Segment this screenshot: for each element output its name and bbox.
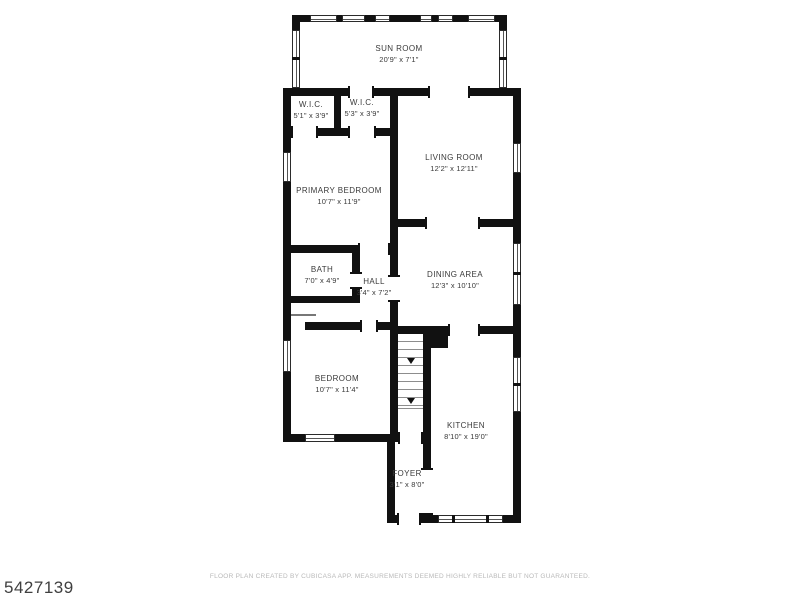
room-label-foyer: FOYER 3'1" x 8'0"	[390, 468, 425, 490]
door-hall-bedroom	[360, 322, 378, 330]
room-name: BATH	[305, 264, 340, 275]
room-name: PRIMARY BEDROOM	[296, 185, 382, 196]
room-name: HALL	[357, 276, 392, 287]
wall-bath-bottom	[283, 296, 360, 303]
stairs-direction-arrow	[407, 398, 415, 404]
room-dims: 7'0" x 4'9"	[305, 275, 340, 286]
wall-kitchen-top	[480, 326, 513, 334]
room-dims: 12'2" x 12'11"	[425, 163, 483, 174]
window-primary-left	[283, 152, 291, 182]
wall-hall-dining-upper	[390, 227, 398, 275]
room-name: FOYER	[390, 468, 425, 479]
door-foyer-top	[398, 434, 423, 442]
window-sunroom-top-3	[375, 15, 390, 22]
staircase	[398, 334, 423, 409]
room-label-hall: HALL 3'4" x 7'2"	[357, 276, 392, 298]
room-label-wic-1: W.I.C. 5'1" x 3'9"	[294, 99, 329, 121]
room-label-living-room: LIVING ROOM 12'2" x 12'11"	[425, 152, 483, 174]
wall-main-top	[283, 88, 521, 96]
room-label-primary-bedroom: PRIMARY BEDROOM 10'7" x 11'9"	[296, 185, 382, 207]
window-bedroom-left	[283, 340, 291, 372]
room-name: SUN ROOM	[375, 43, 422, 54]
room-dims: 10'7" x 11'9"	[296, 196, 382, 207]
door-wic2	[348, 128, 376, 136]
wall-living-left	[390, 95, 398, 227]
room-name: KITCHEN	[444, 420, 488, 431]
stairs-direction-arrow	[407, 358, 415, 364]
window-sunroom-top-4	[420, 15, 432, 22]
door-living-dining	[425, 219, 480, 227]
room-label-bedroom: BEDROOM 10'7" x 11'4"	[315, 373, 359, 395]
room-label-sun-room: SUN ROOM 20'9" x 7'1"	[375, 43, 422, 65]
window-sunroom-top-1	[310, 15, 337, 22]
door-entry	[397, 515, 421, 523]
wall-closet-bottom	[305, 322, 360, 330]
door-sunroom-living	[428, 88, 470, 96]
window-mullion	[513, 272, 521, 275]
door-sunroom-wic	[348, 88, 374, 96]
room-dims: 10'7" x 11'4"	[315, 384, 359, 395]
window-sunroom-top-5	[438, 15, 453, 22]
wall-bedroom-bottom	[283, 434, 398, 442]
window-mullion	[513, 383, 521, 386]
window-sunroom-top-2	[342, 15, 365, 22]
room-label-bath: BATH 7'0" x 4'9"	[305, 264, 340, 286]
floor-plan: SUN ROOM 20'9" x 7'1" W.I.C. 5'1" x 3'9"…	[0, 0, 800, 600]
room-dims: 20'9" x 7'1"	[375, 54, 422, 65]
room-dims: 8'10" x 19'0"	[444, 431, 488, 442]
window-bedroom-bottom	[305, 434, 335, 442]
room-dims: 3'1" x 8'0"	[390, 479, 425, 490]
door-wic1	[291, 128, 318, 136]
room-name: W.I.C.	[294, 99, 329, 110]
window-living-right	[513, 143, 521, 173]
room-name: BEDROOM	[315, 373, 359, 384]
room-name: DINING AREA	[427, 269, 483, 280]
window-sunroom-top-6	[468, 15, 495, 22]
wall-kitchen-left	[423, 345, 431, 468]
room-dims: 12'3" x 10'10"	[427, 280, 483, 291]
window-mullion	[292, 57, 300, 60]
room-dims: 5'1" x 3'9"	[294, 110, 329, 121]
room-label-kitchen: KITCHEN 8'10" x 19'0"	[444, 420, 488, 442]
window-kitchen-bottom	[438, 515, 503, 523]
wall-bedroom-right	[390, 330, 398, 434]
closet-door-line	[291, 314, 316, 316]
room-name: LIVING ROOM	[425, 152, 483, 163]
room-label-dining-area: DINING AREA 12'3" x 10'10"	[427, 269, 483, 291]
room-name: W.I.C.	[345, 97, 380, 108]
wall-bath-right-upper	[352, 253, 360, 272]
window-mullion	[452, 515, 455, 523]
room-dims: 3'4" x 7'2"	[357, 287, 392, 298]
wall-main-left	[283, 88, 291, 434]
door-dining-kitchen	[448, 326, 480, 334]
disclaimer-text: FLOOR PLAN CREATED BY CUBICASA APP. MEAS…	[210, 573, 590, 580]
window-mullion	[499, 57, 507, 60]
window-mullion	[486, 515, 489, 523]
listing-id: 5427139	[4, 578, 74, 598]
room-label-wic-2: W.I.C. 5'3" x 3'9"	[345, 97, 380, 119]
room-dims: 5'3" x 3'9"	[345, 108, 380, 119]
door-hall-primary	[358, 245, 390, 253]
wall-primary-bottom	[283, 245, 358, 253]
